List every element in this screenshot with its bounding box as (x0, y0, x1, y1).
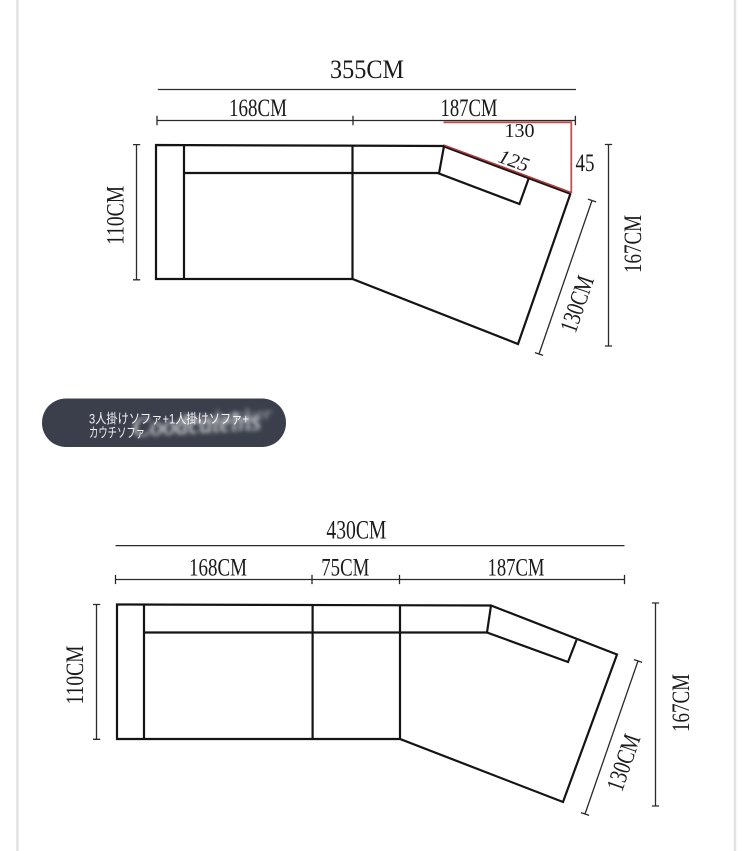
svg-text:45: 45 (576, 148, 595, 177)
svg-text:110CM: 110CM (62, 646, 89, 705)
svg-text:130: 130 (505, 120, 535, 142)
svg-text:355CM: 355CM (330, 54, 404, 84)
svg-text:168CM: 168CM (229, 95, 287, 122)
svg-text:187CM: 187CM (488, 555, 545, 582)
svg-text:168CM: 168CM (189, 555, 247, 582)
svg-text:430CM: 430CM (326, 515, 386, 545)
svg-text:167CM: 167CM (668, 674, 695, 732)
svg-text:110CM: 110CM (102, 186, 129, 245)
svg-text:167CM: 167CM (620, 215, 647, 273)
svg-text:187CM: 187CM (441, 95, 498, 122)
svg-text:75CM: 75CM (321, 555, 369, 582)
